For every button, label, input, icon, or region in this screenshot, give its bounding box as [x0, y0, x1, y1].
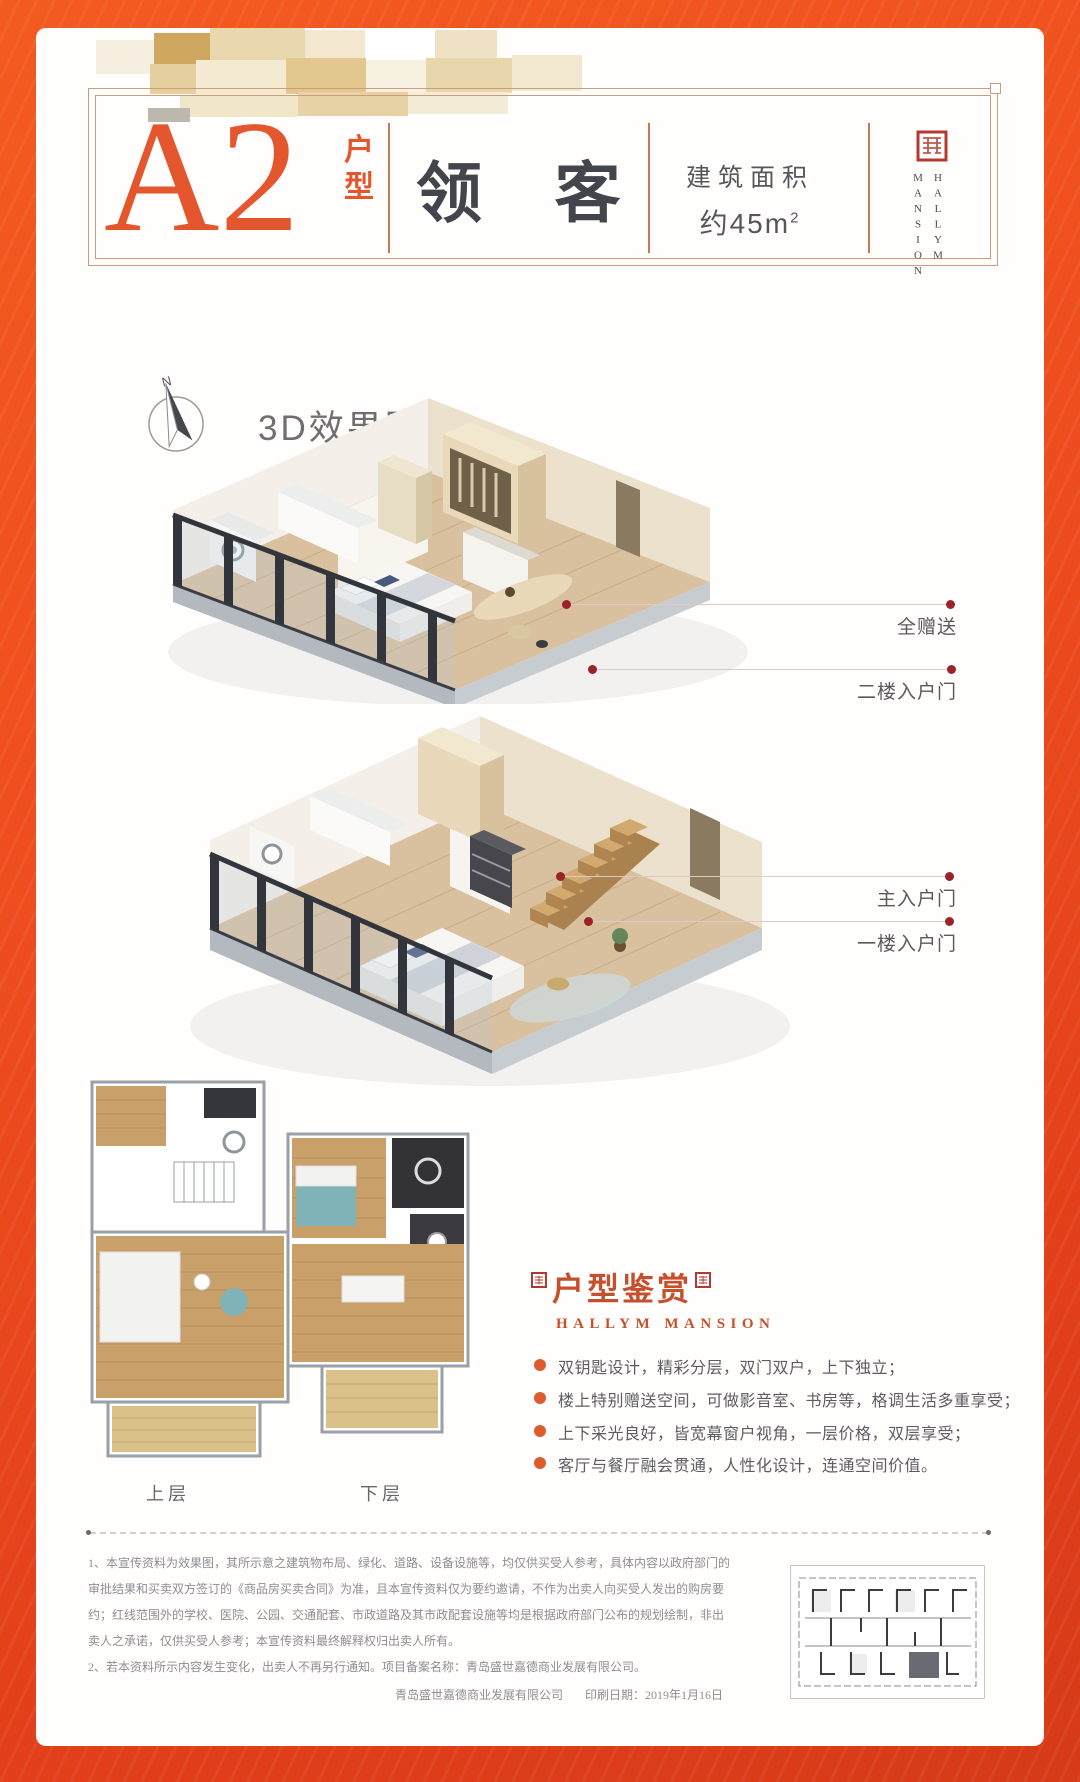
callout-line — [592, 669, 954, 670]
callout-line — [588, 921, 952, 922]
bullet-item: 楼上特别赠送空间，可做影音室、书房等，格调生活多重享受； — [558, 1387, 1020, 1411]
brand-name-hallym: HALLYM — [932, 172, 944, 270]
callout-dot — [946, 600, 955, 609]
disclaimer-line: 审批结果和买卖双方签订的《商品房买卖合同》为准，且本宣传资料仅为要约邀请，不作为… — [88, 1576, 718, 1602]
mosaic-block — [365, 28, 435, 61]
keyplan-diagram — [791, 1566, 984, 1698]
callout-dot — [562, 600, 571, 609]
separator-end-dot — [86, 1530, 91, 1535]
appreciation-title: 户型鉴赏 — [552, 1264, 692, 1310]
unit-code: A2 — [104, 96, 300, 256]
callout-label-gift: 全赠送 — [897, 612, 957, 639]
callout-dot — [947, 665, 956, 674]
plan-label-upper: 上层 — [146, 1480, 190, 1506]
area-label: 建筑面积 — [650, 158, 850, 194]
unit-type-label: 户型 — [344, 132, 378, 206]
unit-name: 领 客 — [416, 140, 649, 236]
bullet-item: 上下采光良好，皆宽幕窗户视角，一层价格，双层享受； — [558, 1420, 971, 1444]
callout-dot — [584, 917, 593, 926]
callout-line — [560, 876, 952, 877]
header-divider — [388, 123, 390, 253]
keyplan-box — [790, 1565, 985, 1699]
dashed-separator — [90, 1532, 988, 1534]
area-value: 约45m2 — [650, 202, 850, 242]
brand-name-mansion: MANSION — [912, 172, 924, 270]
bullet-dot — [534, 1392, 546, 1404]
appreciation-subtitle: HALLYM MANSION — [556, 1316, 775, 1333]
bullet-item: 客厅与餐厅融会贯通，人性化设计，连通空间价值。 — [558, 1452, 938, 1476]
mosaic-block — [96, 40, 154, 74]
footer-print-date: 印刷日期：2019年1月16日 — [585, 1688, 723, 1702]
mini-seal-icon — [531, 1272, 547, 1288]
plan-upper-floor-2d — [84, 1072, 298, 1472]
header-corner-ornament — [990, 83, 1001, 94]
bullet-dot — [534, 1359, 546, 1371]
plan-label-lower: 下层 — [360, 1480, 404, 1506]
disclaimer-line: 卖人之承诺，仅供买受人参考；本宣传资料最终解释权归出卖人所有。 — [88, 1628, 718, 1654]
compass-north-label: N — [160, 373, 173, 390]
disclaimer-line: 1、本宣传资料为效果图，其所示意之建筑物布局、绿化、道路、设备设施等，均仅供买受… — [88, 1550, 718, 1576]
callout-dot — [556, 872, 565, 881]
disclaimer-line: 2、若本资料所示内容发生变化，出卖人不再另行通知。项目备案名称：青岛盛世嘉德商业… — [88, 1654, 718, 1680]
area-block: 建筑面积 约45m2 — [650, 158, 850, 242]
callout-line — [566, 604, 954, 605]
mini-seal-icon — [695, 1272, 711, 1288]
disclaimer-line: 约；红线范围外的学校、医院、公园、交通配套、市政道路及其市政配套设施等均是根据政… — [88, 1602, 718, 1628]
mosaic-block — [512, 55, 582, 91]
flyer-page: A2 户型 领 客 建筑面积 约45m2 MANSION HALLYM N 3D… — [0, 0, 1080, 1782]
disclaimer-block: 1、本宣传资料为效果图，其所示意之建筑物布局、绿化、道路、设备设施等，均仅供买受… — [88, 1550, 718, 1680]
callout-dot — [588, 665, 597, 674]
callout-dot — [945, 917, 954, 926]
bullet-dot — [534, 1457, 546, 1469]
mosaic-block — [435, 30, 497, 61]
footer-company: 青岛盛世嘉德商业发展有限公司 — [395, 1688, 563, 1702]
callout-dot — [945, 872, 954, 881]
header-divider — [868, 123, 870, 253]
callout-label-first-floor-entry: 一楼入户门 — [857, 929, 957, 956]
callout-label-second-floor-entry: 二楼入户门 — [857, 677, 957, 704]
bullet-item: 双钥匙设计，精彩分层，双门双户，上下独立； — [558, 1354, 905, 1378]
plan-lower-floor-2d — [282, 1126, 474, 1472]
footer-line: 青岛盛世嘉德商业发展有限公司印刷日期：2019年1月16日 — [395, 1686, 745, 1703]
separator-end-dot — [986, 1530, 991, 1535]
bullet-dot — [534, 1425, 546, 1437]
brand-seal-icon — [916, 130, 948, 162]
callout-label-main-entry: 主入户门 — [877, 884, 957, 911]
